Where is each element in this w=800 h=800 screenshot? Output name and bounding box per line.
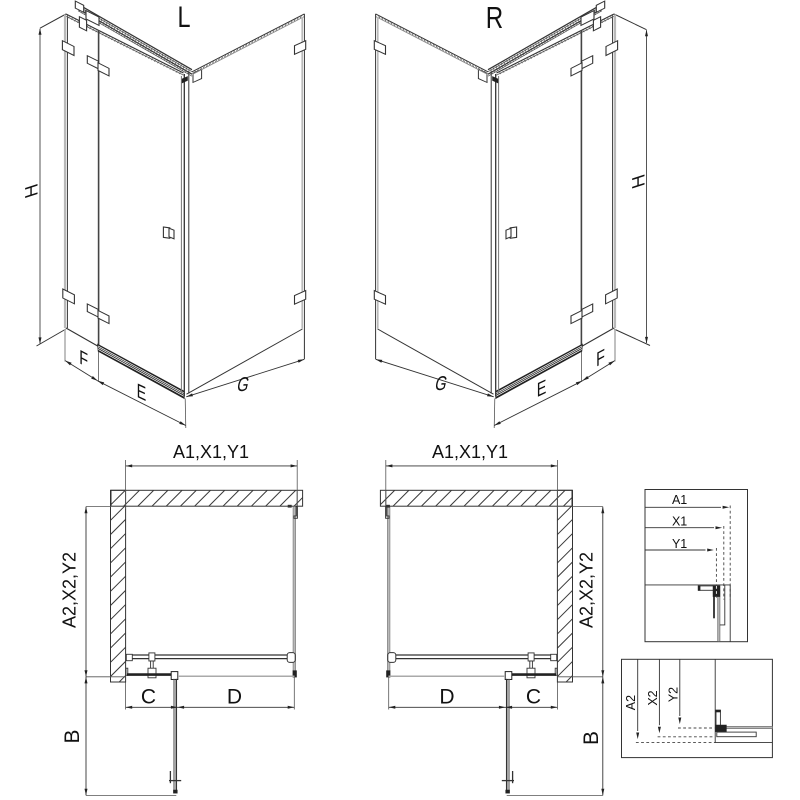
svg-text:X2: X2 — [646, 690, 660, 705]
svg-text:C: C — [141, 686, 156, 709]
svg-text:A2,X2,Y2: A2,X2,Y2 — [577, 552, 597, 628]
svg-text:L: L — [177, 0, 190, 33]
svg-text:Y1: Y1 — [672, 537, 687, 551]
svg-text:E: E — [537, 375, 547, 402]
svg-text:C: C — [526, 686, 541, 709]
svg-text:A2: A2 — [624, 695, 638, 710]
svg-text:A1,X1,Y1: A1,X1,Y1 — [432, 442, 508, 462]
svg-text:A2,X2,Y2: A2,X2,Y2 — [60, 552, 80, 628]
svg-text:R: R — [486, 0, 503, 35]
svg-text:B: B — [580, 731, 603, 745]
svg-text:A1: A1 — [672, 493, 687, 507]
svg-text:A1,X1,Y1: A1,X1,Y1 — [173, 442, 249, 462]
svg-text:D: D — [439, 686, 454, 709]
svg-text:E: E — [137, 379, 147, 406]
svg-text:X1: X1 — [672, 515, 687, 529]
svg-text:F: F — [596, 344, 605, 372]
svg-text:B: B — [61, 729, 84, 743]
svg-text:Y2: Y2 — [667, 687, 681, 702]
svg-text:F: F — [79, 345, 88, 373]
svg-text:D: D — [227, 686, 242, 709]
